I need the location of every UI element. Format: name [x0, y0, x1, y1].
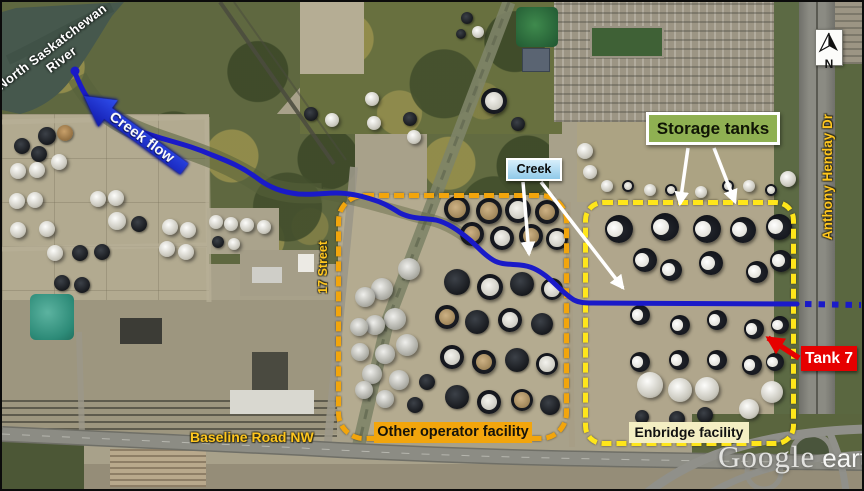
storage-tank: [159, 241, 175, 257]
storage-tank: [94, 244, 110, 260]
storage-tank: [9, 193, 25, 209]
other-operator-facility-label: Other operator facility: [374, 422, 532, 443]
storage-tank: [57, 125, 73, 141]
storage-tanks-label: Storage tanks: [646, 112, 780, 145]
earth-logo-text: earth: [822, 443, 864, 473]
storage-tank: [39, 221, 55, 237]
storage-tank: [10, 222, 26, 238]
storage-tank: [72, 245, 88, 261]
storage-tank: [31, 146, 47, 162]
storage-tank: [622, 180, 634, 192]
storage-tank: [743, 180, 755, 192]
storage-tank: [178, 244, 194, 260]
storage-tank: [765, 184, 777, 196]
storage-tank: [456, 29, 466, 39]
storage-tank: [583, 165, 597, 179]
storage-tank: [47, 245, 63, 261]
storage-tank: [108, 212, 126, 230]
storage-tank: [481, 88, 507, 114]
storage-tank: [10, 163, 26, 179]
storage-tank: [212, 236, 224, 248]
storage-tank: [325, 113, 339, 127]
north-letter: N: [816, 58, 842, 70]
storage-tank: [29, 162, 45, 178]
storage-tank: [131, 216, 147, 232]
other-operator-facility-boundary: [336, 193, 569, 441]
storage-tank: [38, 127, 56, 145]
storage-tank: [108, 190, 124, 206]
storage-tank: [665, 184, 677, 196]
storage-tank: [722, 180, 734, 192]
storage-tank: [472, 26, 484, 38]
storage-tank: [403, 112, 417, 126]
street-17-label: 17 Street: [316, 241, 330, 294]
north-arrow: N: [815, 29, 843, 66]
storage-tank: [180, 222, 196, 238]
storage-tank: [577, 143, 593, 159]
tank7-label: Tank 7: [801, 346, 857, 371]
north-arrow-icon: [816, 30, 842, 53]
storage-tank: [695, 186, 707, 198]
storage-tank: [54, 275, 70, 291]
google-logo-text: Google: [718, 439, 815, 474]
baseline-road-nw-label: Baseline Road NW: [190, 429, 314, 445]
storage-tank: [644, 184, 656, 196]
google-earth-watermark: Googleearth: [718, 439, 864, 475]
enbridge-facility-boundary: [583, 200, 796, 446]
storage-tank: [367, 116, 381, 130]
storage-tank: [74, 277, 90, 293]
storage-tank: [511, 117, 525, 131]
storage-tank: [601, 180, 613, 192]
storage-tank: [27, 192, 43, 208]
storage-tank: [365, 92, 379, 106]
storage-tank: [209, 215, 223, 229]
storage-tank: [14, 138, 30, 154]
storage-tank: [461, 12, 473, 24]
storage-tank: [780, 171, 796, 187]
storage-tank: [162, 219, 178, 235]
storage-tank: [90, 191, 106, 207]
anthony-henday-dr-label: Anthony Henday Dr: [820, 114, 835, 240]
map-frame: North Saskatchewan River Creek flow Cree…: [0, 0, 864, 491]
storage-tank: [228, 238, 240, 250]
storage-tank: [304, 107, 318, 121]
storage-tank: [224, 217, 238, 231]
creek-label: Creek: [506, 158, 562, 181]
storage-tank: [51, 154, 67, 170]
storage-tank: [240, 218, 254, 232]
storage-tank: [257, 220, 271, 234]
storage-tank: [407, 130, 421, 144]
